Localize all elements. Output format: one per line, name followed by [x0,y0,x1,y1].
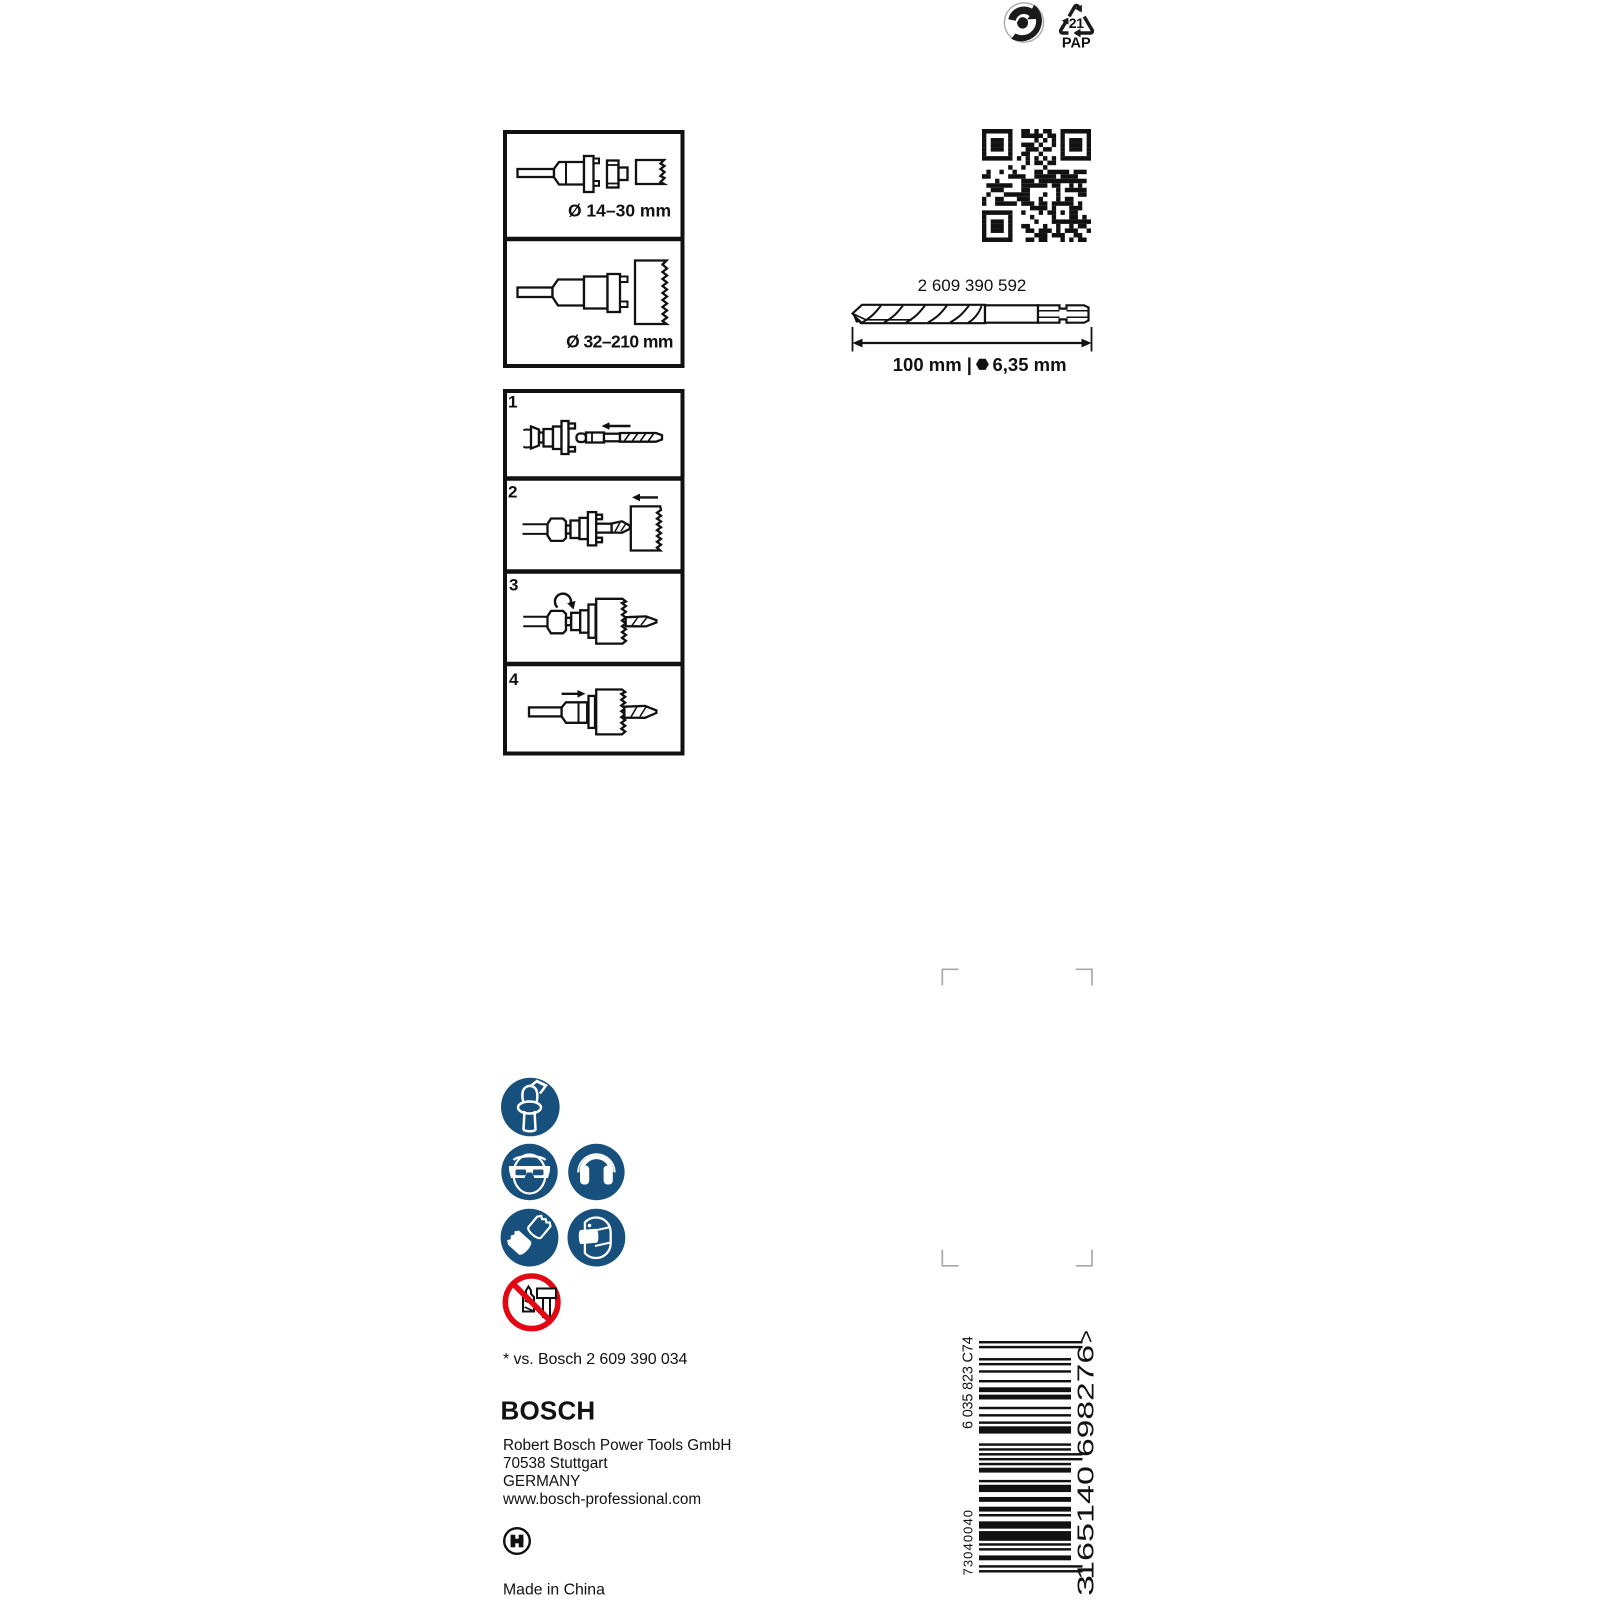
svg-text:100 mm |: 100 mm | [893,354,972,375]
svg-text:2: 2 [508,483,517,502]
svg-text:165140: 165140 [1073,1466,1099,1580]
svg-text:PAP: PAP [1062,36,1091,52]
svg-text:2 609 390 592: 2 609 390 592 [918,276,1027,295]
svg-text:Ø 32–210 mm: Ø 32–210 mm [566,332,673,352]
svg-text:698276: 698276 [1073,1345,1099,1457]
svg-text:* vs. Bosch 2 609 390 034: * vs. Bosch 2 609 390 034 [503,1351,687,1368]
svg-text:73040040: 73040040 [961,1509,976,1576]
svg-text:4: 4 [509,670,519,689]
svg-text:70538 Stuttgart: 70538 Stuttgart [503,1455,608,1472]
svg-text:Robert Bosch Power Tools GmbH: Robert Bosch Power Tools GmbH [503,1437,731,1454]
svg-text:3: 3 [509,576,518,595]
svg-text:GERMANY: GERMANY [503,1473,580,1490]
svg-text:6 035 823 C74: 6 035 823 C74 [961,1336,977,1429]
svg-text:BOSCH: BOSCH [501,1396,596,1426]
svg-text:1: 1 [508,393,517,412]
svg-text:21: 21 [1069,15,1084,31]
svg-text:6,35 mm: 6,35 mm [993,354,1067,375]
svg-text:Made in China: Made in China [503,1582,605,1599]
svg-text:Ø 14–30 mm: Ø 14–30 mm [568,201,671,221]
svg-text:www.bosch-professional.com: www.bosch-professional.com [502,1491,701,1508]
